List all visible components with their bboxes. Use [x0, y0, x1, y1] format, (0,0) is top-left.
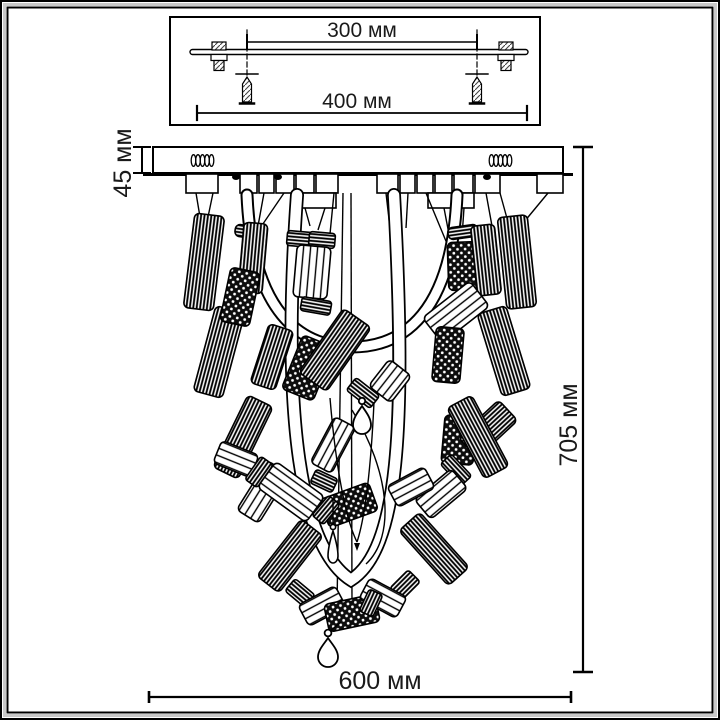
dim-45-label: 45 мм — [109, 128, 137, 197]
dim-400-label: 400 мм — [322, 90, 392, 113]
bead-segment — [293, 245, 331, 300]
dim-705-label: 705 мм — [555, 383, 583, 466]
canopy — [143, 147, 573, 175]
hanger-block — [186, 174, 218, 193]
hanger-block — [400, 174, 415, 193]
hanger-block — [537, 174, 563, 193]
top-view-panel: 300 мм 400 мм — [170, 17, 540, 125]
dim-600-label: 600 мм — [338, 667, 421, 695]
drawing-canvas: 300 мм 400 мм — [0, 0, 720, 720]
hanger-block — [435, 174, 452, 193]
suspension-rod — [351, 193, 352, 606]
chandelier-diagram: 300 мм 400 мм — [0, 0, 720, 720]
hanger-block — [417, 174, 433, 193]
bead-segment — [432, 326, 465, 383]
hanger-block — [259, 174, 274, 193]
hanger-block — [316, 174, 338, 193]
dim-300-label: 300 мм — [327, 19, 397, 42]
